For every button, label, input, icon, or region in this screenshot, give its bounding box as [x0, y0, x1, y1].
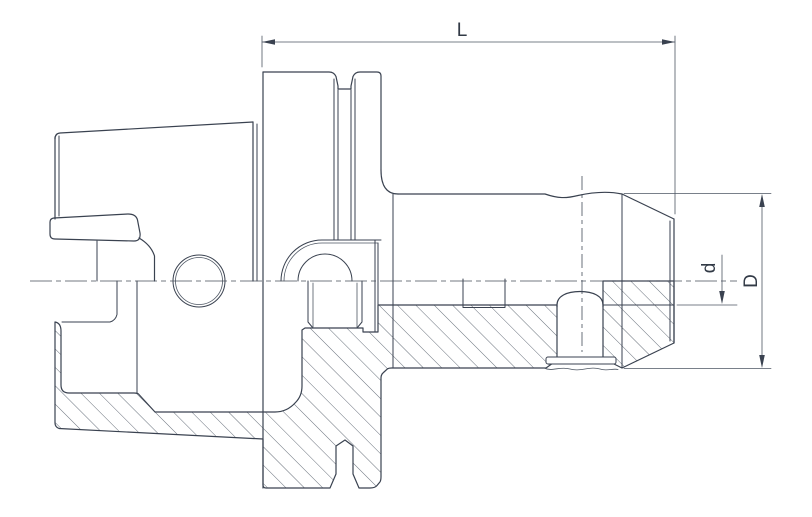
flange-top-profile: [263, 72, 381, 170]
dim-label-d: d: [699, 263, 720, 274]
screw-dome: [557, 292, 603, 308]
dim-L-arrow-left: [262, 39, 275, 45]
nose-chamfer-top: [622, 194, 674, 219]
dim-D-arrow-top: [759, 194, 765, 207]
section-hatch-region: [55, 281, 674, 488]
taper-top-edge: [55, 122, 253, 139]
dim-L-arrow-right: [662, 39, 675, 45]
bore-mouth-arc-outer: [281, 240, 381, 281]
taper-shank: [50, 122, 257, 307]
dim-label-L: L: [457, 20, 468, 41]
thread-pocket-wall-left-outer: [308, 281, 313, 328]
flange-body-fillet: [381, 170, 398, 194]
cavity-bore-wall: [62, 315, 117, 323]
bore-mouth-semicircle: [298, 254, 352, 281]
drawing-canvas: L d D: [0, 0, 812, 517]
dimension-L: L: [262, 20, 675, 214]
drive-notch: [50, 214, 140, 241]
dim-d-arrow: [719, 291, 725, 304]
screw-seat: [546, 357, 616, 364]
dim-D-arrow-bottom: [759, 355, 765, 368]
notch-fillet-sweep: [139, 238, 155, 281]
technical-drawing: L d D: [0, 0, 812, 517]
dimension-d: d: [677, 255, 737, 305]
thread-pocket-wall-right-outer: [357, 281, 362, 328]
dim-label-D: D: [741, 274, 762, 288]
screw-thread-wavy: [544, 368, 618, 370]
body-top-edge: [398, 192, 622, 197]
hatched-material: [55, 281, 674, 488]
